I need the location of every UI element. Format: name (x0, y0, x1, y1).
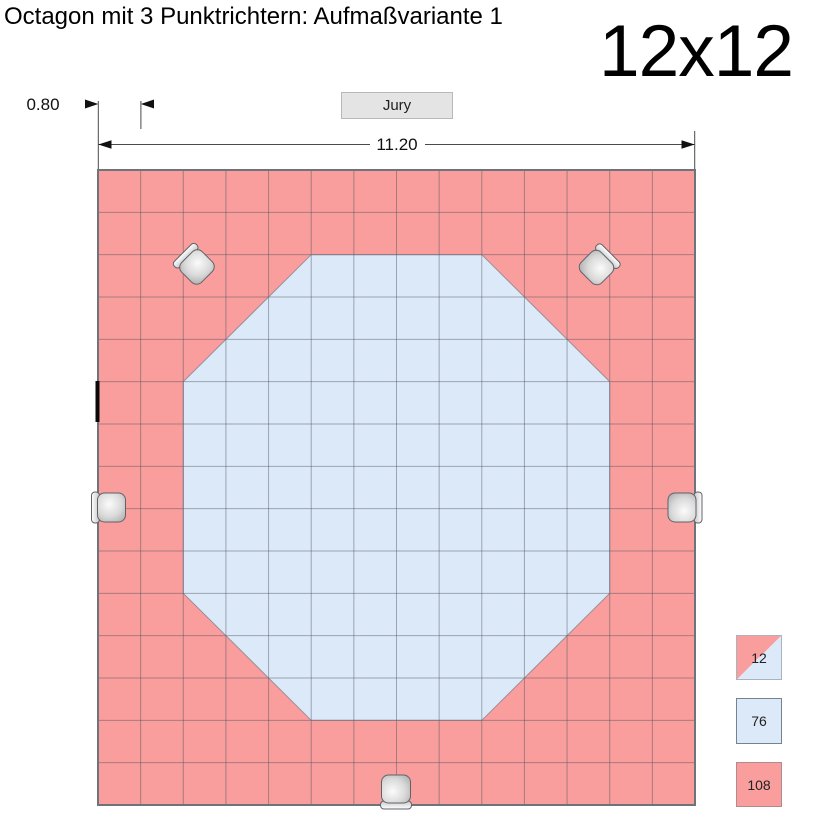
dimension-cell-width: 0.80 (26, 95, 154, 170)
dimension-mat-label: 11.20 (376, 135, 417, 154)
seat-left[interactable] (92, 492, 126, 523)
legend-value: 12 (751, 650, 767, 666)
arrow-left-icon (98, 140, 111, 148)
arrow-right-icon (682, 140, 695, 148)
seat-bottom[interactable] (381, 775, 412, 809)
legend-value: 76 (751, 713, 767, 729)
legend-value: 108 (747, 777, 770, 793)
dimension-mat-width: 11.20 (98, 131, 694, 170)
arrow-right-icon (85, 100, 98, 109)
legend-item-red-tile: 108 (736, 762, 782, 807)
seat-right[interactable] (668, 492, 702, 523)
dimension-cell-label: 0.80 (26, 95, 59, 114)
caret-mark (96, 381, 100, 422)
arrow-left-icon (141, 100, 154, 109)
legend-item-blue-tile: 76 (736, 698, 782, 744)
legend-item-half-tile: 12 (736, 635, 782, 680)
diagram-canvas: 0.80 11.20 (0, 0, 821, 838)
